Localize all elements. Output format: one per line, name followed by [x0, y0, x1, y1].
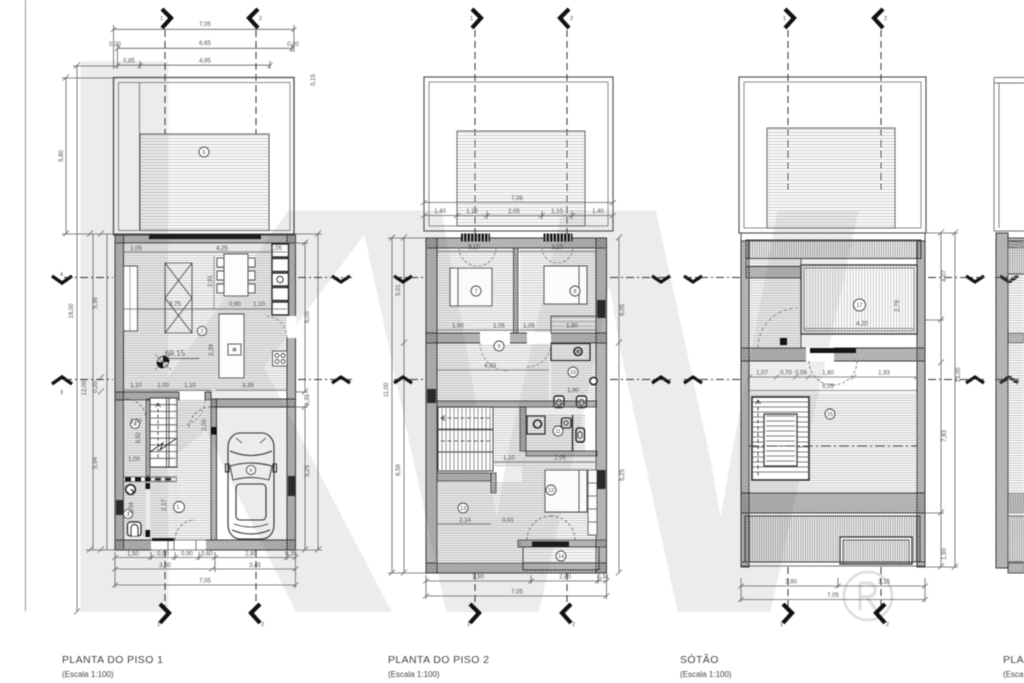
svg-text:14: 14 [558, 554, 564, 560]
svg-text:PLANTA: PLANTA [1003, 654, 1024, 666]
svg-text:8: 8 [573, 289, 576, 295]
svg-text:1,05: 1,05 [130, 246, 142, 252]
svg-text:7,05: 7,05 [511, 196, 523, 202]
svg-text:17: 17 [856, 303, 862, 309]
svg-text:1,90: 1,90 [566, 324, 578, 330]
svg-text:1: 1 [780, 622, 783, 628]
svg-text:3: 3 [60, 390, 63, 396]
svg-text:PLANTA DO PISO 2: PLANTA DO PISO 2 [388, 654, 489, 666]
svg-text:2,04: 2,04 [129, 502, 135, 514]
svg-text:5,36: 5,36 [93, 297, 99, 309]
svg-text:2,05: 2,05 [508, 209, 520, 215]
svg-text:3,15: 3,15 [878, 580, 890, 586]
svg-text:9: 9 [497, 344, 500, 350]
svg-text:3,90: 3,90 [785, 580, 797, 586]
svg-text:1,07: 1,07 [756, 371, 768, 377]
svg-text:6,35: 6,35 [822, 384, 834, 390]
svg-text:3,45: 3,45 [249, 563, 261, 569]
svg-text:2,00: 2,00 [202, 419, 208, 431]
svg-text:PLANTA DO PISO 1: PLANTA DO PISO 1 [62, 654, 163, 666]
svg-text:3,90: 3,90 [472, 575, 484, 581]
svg-text:2: 2 [572, 622, 575, 628]
svg-text:11: 11 [555, 429, 561, 435]
svg-text:2,39: 2,39 [209, 344, 215, 356]
svg-text:1,93: 1,93 [878, 371, 890, 377]
svg-text:5,25: 5,25 [305, 465, 311, 477]
svg-text:13,00: 13,00 [956, 367, 962, 383]
svg-text:1,00: 1,00 [128, 457, 140, 463]
svg-text:1,90: 1,90 [567, 388, 579, 394]
svg-text:15: 15 [827, 412, 833, 418]
svg-text:6: 6 [249, 468, 252, 474]
svg-text:5,25: 5,25 [620, 469, 626, 481]
svg-text:(Escala 1: (Escala 1 [1003, 670, 1024, 679]
svg-text:2: 2 [200, 329, 203, 335]
svg-text:1,10: 1,10 [130, 383, 142, 389]
svg-text:6,59: 6,59 [396, 464, 402, 476]
svg-text:0,59: 0,59 [795, 371, 807, 377]
svg-text:5,80: 5,80 [59, 150, 65, 162]
svg-text:1,10: 1,10 [503, 456, 515, 462]
svg-text:12: 12 [548, 488, 554, 494]
svg-text:3,75: 3,75 [169, 302, 181, 308]
svg-text:2: 2 [886, 622, 889, 628]
svg-text:5,94: 5,94 [93, 457, 99, 469]
svg-text:0,35: 0,35 [305, 394, 311, 406]
svg-text:10: 10 [570, 370, 576, 376]
svg-text:2: 2 [570, 16, 573, 22]
svg-text:(Escala 1:100): (Escala 1:100) [388, 670, 440, 679]
svg-text:4,93: 4,93 [484, 364, 496, 370]
svg-text:(Escala 1:100): (Escala 1:100) [680, 670, 732, 679]
svg-text:3,92: 3,92 [136, 432, 142, 444]
svg-text:18,00: 18,00 [69, 303, 75, 319]
svg-text:4: 4 [60, 272, 63, 278]
svg-text:0,90: 0,90 [181, 552, 193, 558]
svg-text:2: 2 [259, 16, 262, 22]
svg-text:1,10: 1,10 [184, 383, 196, 389]
svg-text:11,00: 11,00 [384, 382, 390, 397]
svg-text:1: 1 [160, 16, 163, 22]
svg-text:7,05: 7,05 [199, 579, 211, 585]
svg-text:1: 1 [467, 622, 470, 628]
svg-text:1,40: 1,40 [434, 209, 446, 215]
svg-text:1,10: 1,10 [466, 209, 478, 215]
svg-text:2,14: 2,14 [459, 518, 471, 524]
svg-text:(Escala 1:100): (Escala 1:100) [62, 670, 114, 679]
svg-text:SÓTÃO: SÓTÃO [680, 653, 719, 666]
svg-text:2,17: 2,17 [162, 499, 168, 511]
svg-text:1,10: 1,10 [253, 302, 265, 308]
svg-text:4,95: 4,95 [199, 59, 211, 65]
svg-text:1,05: 1,05 [493, 324, 505, 330]
svg-text:0,20: 0,20 [93, 381, 99, 393]
svg-text:0,90: 0,90 [157, 552, 169, 558]
svg-text:1,90: 1,90 [452, 324, 464, 330]
svg-text:7,05: 7,05 [199, 22, 211, 28]
svg-text:1,50: 1,50 [127, 552, 139, 558]
svg-text:1,00: 1,00 [157, 383, 169, 389]
svg-text:0,90: 0,90 [229, 302, 241, 308]
svg-text:12,00: 12,00 [82, 380, 88, 396]
svg-text:1: 1 [783, 16, 786, 22]
svg-text:7,83: 7,83 [942, 430, 948, 442]
svg-text:1: 1 [470, 16, 473, 22]
svg-text:1,05: 1,05 [523, 324, 535, 330]
svg-text:2,80: 2,80 [559, 575, 571, 581]
svg-text:6,05: 6,05 [620, 304, 626, 316]
svg-text:0,85: 0,85 [123, 59, 135, 65]
svg-text:2,79: 2,79 [895, 300, 901, 312]
svg-text:1,05: 1,05 [270, 246, 282, 252]
svg-text:5,01: 5,01 [396, 284, 402, 296]
svg-text:4,25: 4,25 [216, 246, 228, 252]
svg-text:0,15: 0,15 [311, 74, 317, 86]
svg-text:7: 7 [474, 289, 477, 295]
svg-text:0,31: 0,31 [597, 575, 609, 581]
svg-text:1: 1 [176, 505, 179, 511]
svg-text:7,05: 7,05 [827, 593, 839, 599]
svg-text:1,40: 1,40 [592, 209, 604, 215]
svg-text:1,90: 1,90 [942, 548, 948, 560]
svg-text:3,35: 3,35 [242, 383, 254, 389]
svg-text:4,20: 4,20 [856, 322, 868, 328]
svg-text:5: 5 [202, 150, 205, 156]
svg-text:2: 2 [884, 16, 887, 22]
svg-text:3,10: 3,10 [468, 245, 480, 251]
svg-text:6,65: 6,65 [199, 41, 211, 47]
svg-text:4,07: 4,07 [942, 270, 948, 282]
svg-text:0,70: 0,70 [780, 371, 792, 377]
svg-text:2,91: 2,91 [208, 275, 214, 287]
svg-text:13: 13 [460, 506, 466, 512]
svg-text:0,60: 0,60 [201, 552, 213, 558]
svg-text:6,05: 6,05 [305, 311, 311, 323]
svg-text:0,91: 0,91 [502, 518, 514, 524]
svg-text:0,35: 0,35 [285, 552, 297, 558]
svg-text:2: 2 [261, 622, 264, 628]
svg-text:3,10: 3,10 [551, 245, 563, 251]
svg-text:0,20: 0,20 [109, 42, 121, 48]
svg-text:1: 1 [157, 622, 160, 628]
svg-text:0,20: 0,20 [287, 42, 299, 48]
svg-text:7,05: 7,05 [511, 590, 523, 596]
svg-text:1,10: 1,10 [551, 209, 563, 215]
svg-text:1,00: 1,00 [130, 419, 142, 425]
svg-text:1,80: 1,80 [822, 371, 834, 377]
